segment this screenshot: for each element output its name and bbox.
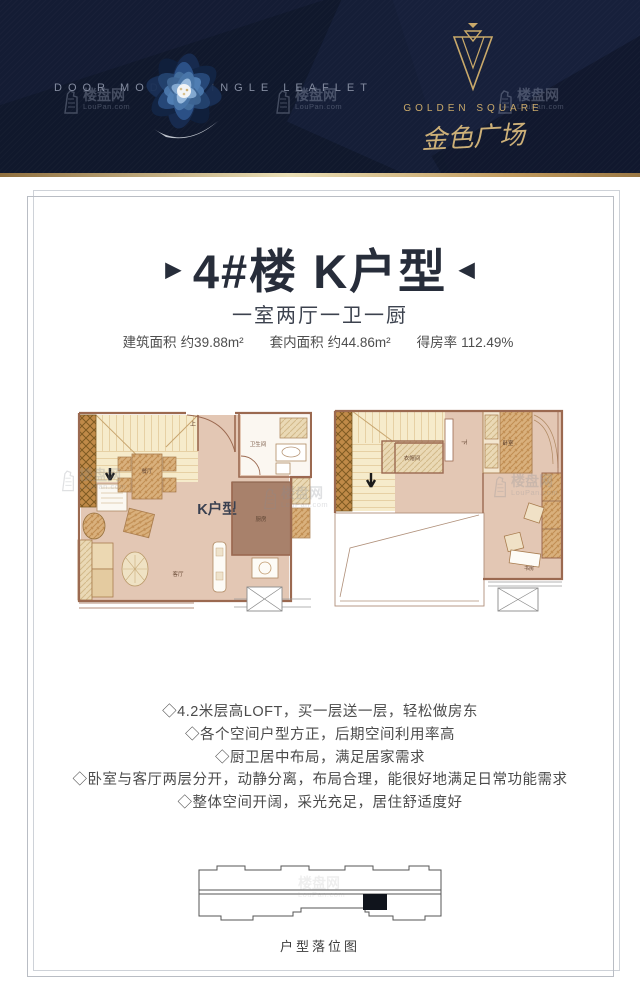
room-label-dining: 餐厅 xyxy=(141,467,153,475)
floorplan-level1: 卫生间 厨房 餐厅 客厅 上 K户型 xyxy=(74,402,312,613)
label-stairs-up: 上 xyxy=(190,420,196,428)
stat-built-area: 建筑面积约39.88m² xyxy=(123,331,248,351)
golden-square-triangle-icon xyxy=(441,22,505,94)
room-label-cloakroom: 衣帽间 xyxy=(404,454,421,462)
area-stats: 建筑面积约39.88m² 套内面积约44.86m² 得房率112.49% xyxy=(0,331,640,351)
brand-name-cn: 金色广场 xyxy=(400,113,546,157)
feature-item: ◇各个空间户型方正，后期空间利用率高 xyxy=(0,724,640,747)
room-label-study: 书房 xyxy=(524,565,534,572)
feature-item: ◇整体空间开阔，采光充足，居住舒适度好 xyxy=(0,792,640,815)
layout-subtitle: 一室两厅一卫一厨 xyxy=(0,299,640,328)
feature-item: ◇卧室与客厅两层分开，动静分离，布局合理，能很好地满足日常功能需求 xyxy=(0,769,640,792)
title-text: 4#楼 K户型 xyxy=(193,245,447,298)
floorplan-level2: 衣帽间 下 卧室 书房 xyxy=(330,402,568,613)
location-diagram-caption: 户型落位图 xyxy=(0,936,640,955)
page-title: ▶4#楼 K户型◀ xyxy=(0,233,640,302)
label-stairs-down: 下 xyxy=(460,439,467,445)
stat-inner-area: 套内面积约44.86m² xyxy=(270,331,395,351)
title-left-arrow-icon: ▶ xyxy=(165,259,180,281)
room-label-bedroom: 卧室 xyxy=(502,439,514,447)
room-label-living: 客厅 xyxy=(172,570,184,578)
feature-list: ◇4.2米层高LOFT，买一层送一层，轻松做房东 ◇各个空间户型方正，后期空间利… xyxy=(0,701,640,815)
brand-name-en: GOLDEN SQUARE xyxy=(401,103,545,114)
stat-efficiency: 得房率112.49% xyxy=(417,331,518,351)
unit-location-diagram xyxy=(197,864,443,928)
header-banner: DOOR MODEL SINGLE LEAFLET xyxy=(0,0,640,173)
title-right-arrow-icon: ◀ xyxy=(459,259,474,281)
feature-item: ◇4.2米层高LOFT，买一层送一层，轻松做房东 xyxy=(0,701,640,724)
room-label-bathroom: 卫生间 xyxy=(250,440,267,448)
brand-logo: GOLDEN SQUARE 金色广场 xyxy=(401,22,545,154)
gold-divider xyxy=(0,173,640,177)
feature-item: ◇厨卫居中布局，满足居家需求 xyxy=(0,747,640,770)
room-label-kitchen: 厨房 xyxy=(255,515,267,523)
unit-position-marker xyxy=(363,894,387,910)
blue-flower-image xyxy=(105,12,263,170)
